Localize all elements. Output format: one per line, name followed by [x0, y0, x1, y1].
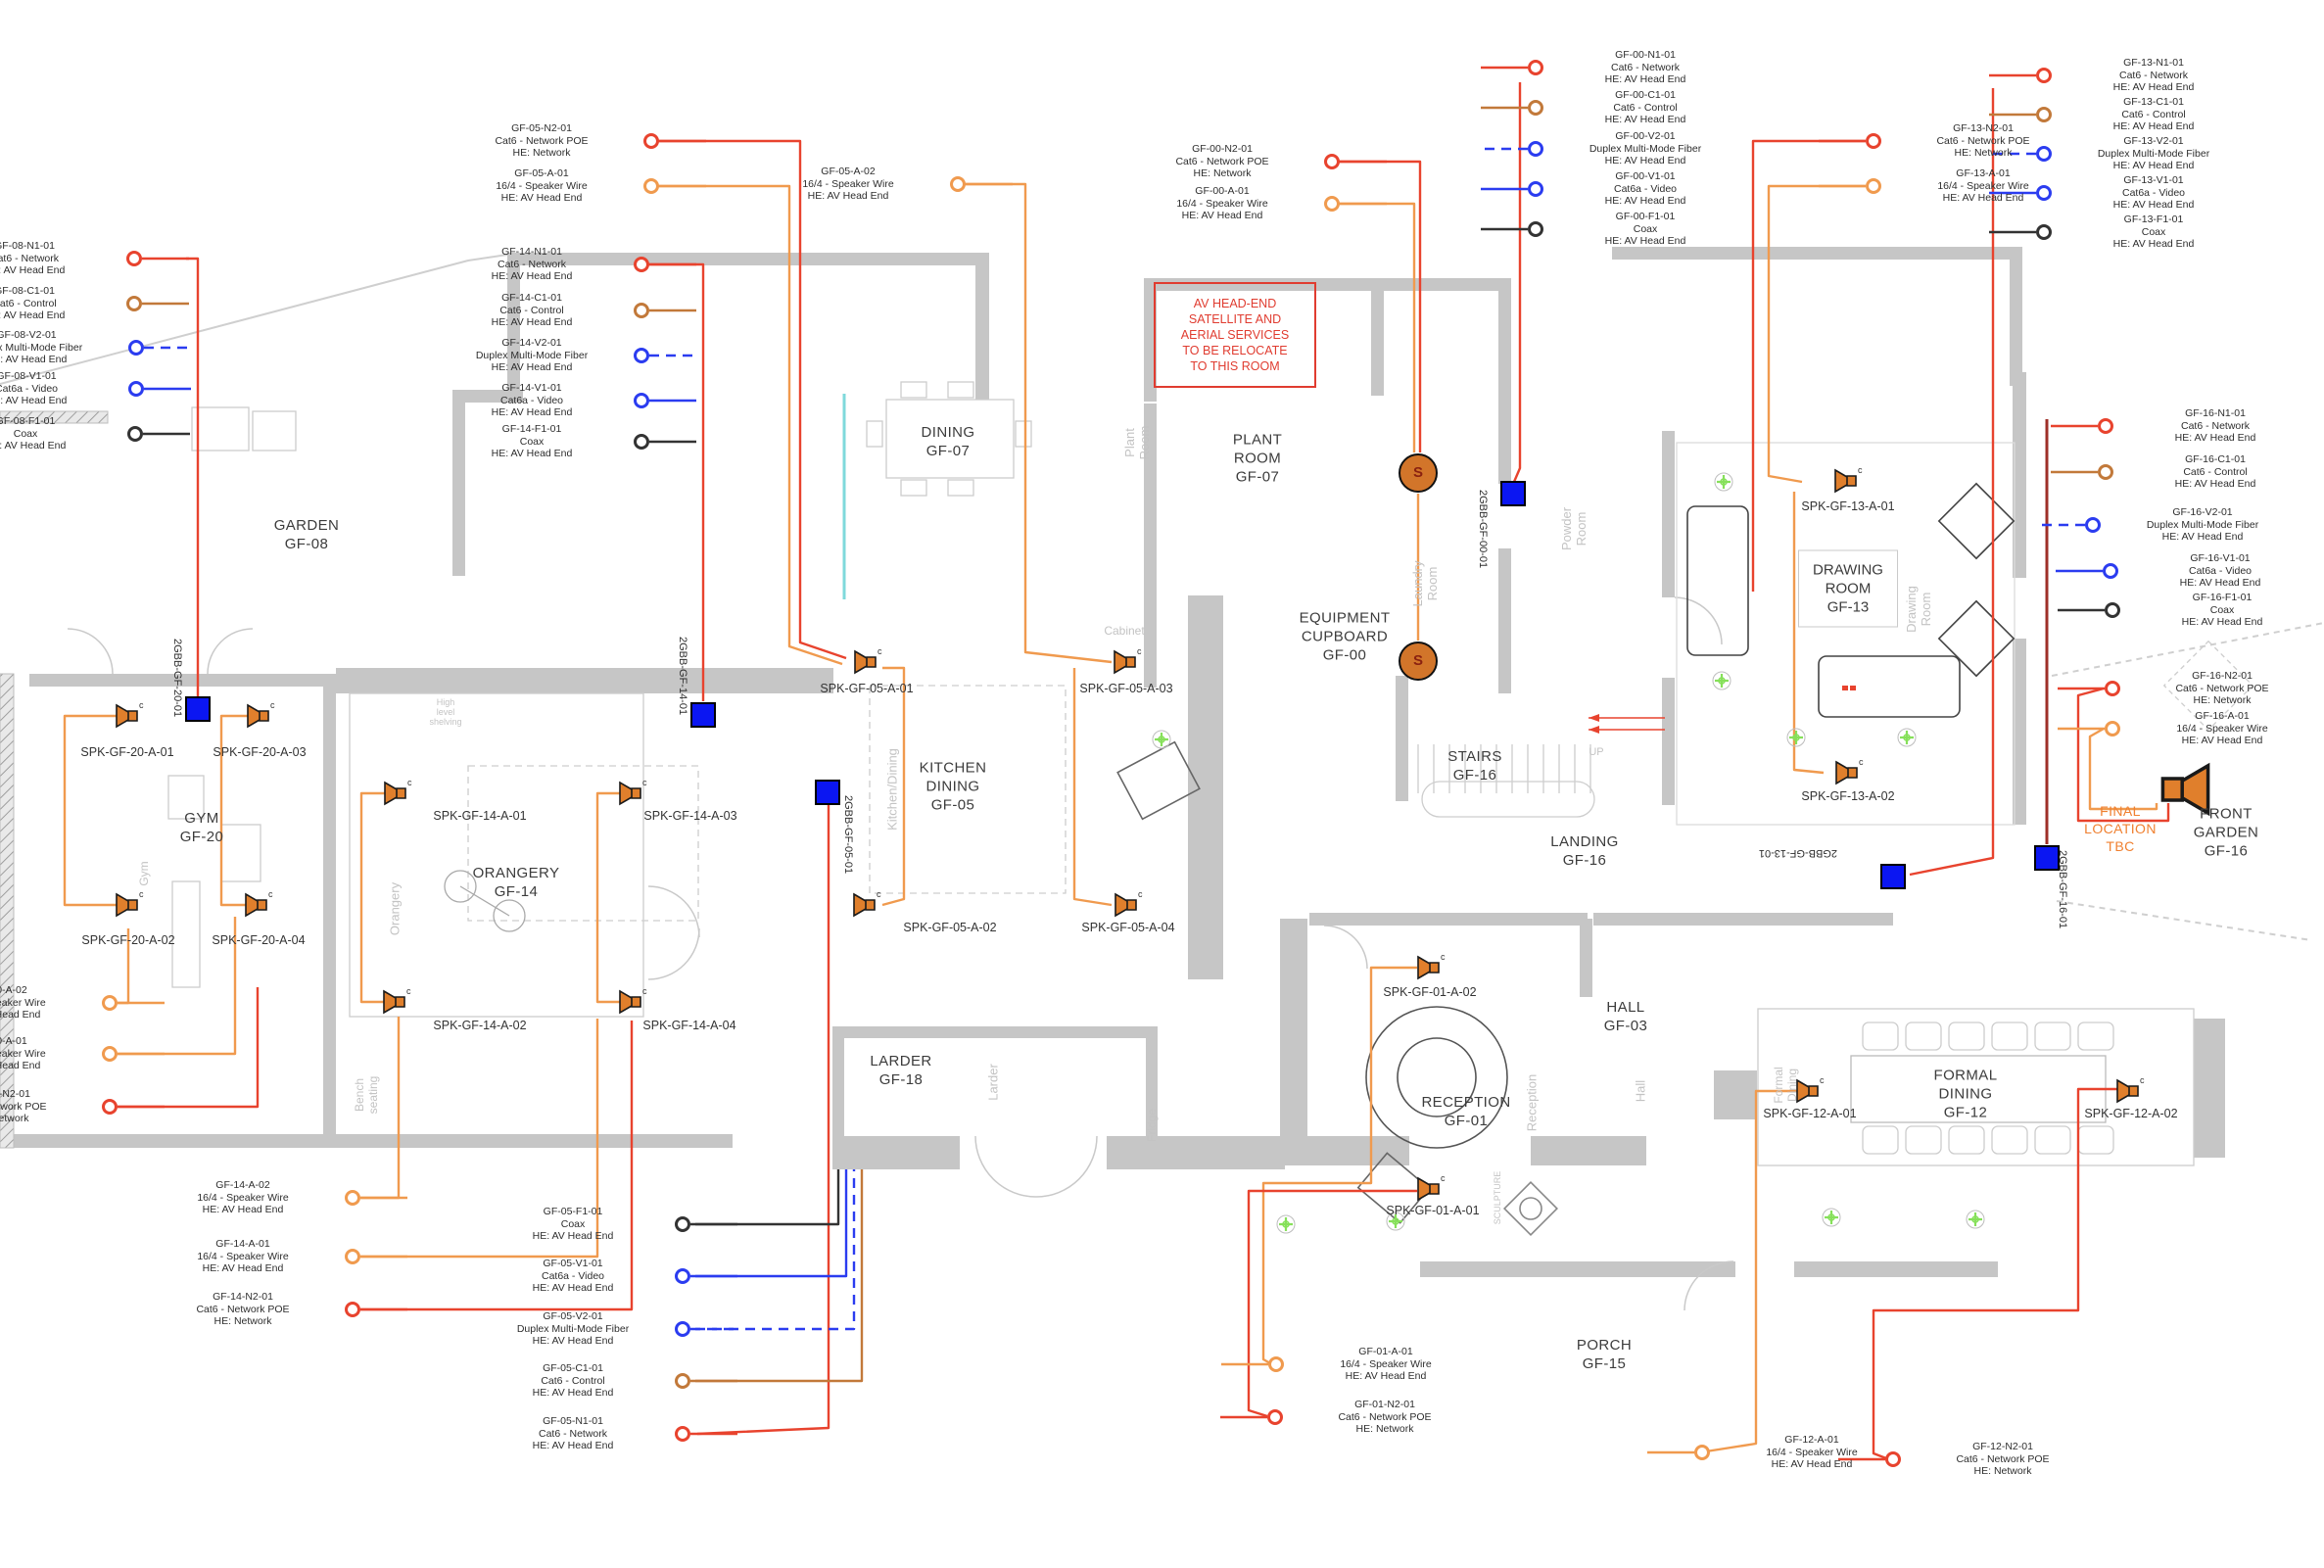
- callout-line: GF-14-C1-01: [434, 292, 630, 305]
- cable-terminal-icon: [643, 178, 659, 194]
- callout-line: Cat6 - Control: [1547, 102, 1743, 115]
- callout-line: Coax: [2124, 604, 2320, 617]
- cable-run: [1910, 88, 1993, 875]
- speaker-label-SPK-GF-12-A-01: SPK-GF-12-A-01: [1763, 1107, 1856, 1120]
- callout-line: HE: AV Head End: [2124, 616, 2320, 629]
- cable-terminal-icon: [675, 1321, 690, 1337]
- callout-line: Cat6 - Network POE: [145, 1304, 341, 1316]
- callout-line: GF-13-A-01: [1885, 167, 2081, 180]
- keypad-label-2GBB-GF-13-01: 2GBB-GF-13-01: [1759, 847, 1837, 859]
- callout-line: Cat6 - Control: [0, 298, 122, 310]
- callout-GF-20-N2-01: GF-20-N2-01Cat6 - Network POEHE: Network: [0, 1088, 98, 1125]
- callout-line: Cat6a - Video: [1547, 183, 1743, 196]
- speaker-label-SPK-GF-13-A-01: SPK-GF-13-A-01: [1801, 499, 1894, 513]
- callout-GF-08-C1-01: GF-08-C1-01Cat6 - ControlHE: AV Head End: [0, 285, 122, 322]
- svg-text:c: c: [406, 986, 411, 996]
- svg-text:c: c: [642, 778, 647, 787]
- callout-line: GF-14-V2-01: [434, 337, 630, 350]
- callout-line: 16/4 - Speaker Wire: [2124, 723, 2320, 736]
- room-label-porch-gf-15: PORCH GF-15: [1577, 1336, 1632, 1373]
- callout-line: Cat6 - Network POE: [1124, 156, 1320, 168]
- callout-line: Duplex Multi-Mode Fiber: [2105, 519, 2300, 532]
- satellite-icon: S: [1399, 641, 1438, 681]
- cable-terminal-icon: [2036, 146, 2052, 162]
- speaker-label-SPK-GF-12-A-02: SPK-GF-12-A-02: [2084, 1107, 2177, 1120]
- cable-run: [697, 805, 829, 1434]
- speaker-label-SPK-GF-01-A-01: SPK-GF-01-A-01: [1386, 1204, 1479, 1217]
- callout-GF-13-F1-01: GF-13-F1-01CoaxHE: AV Head End: [2056, 214, 2252, 251]
- callout-GF-05-V1-01: GF-05-V1-01Cat6a - VideoHE: AV Head End: [475, 1258, 671, 1295]
- callout-line: HE: AV Head End: [475, 1230, 671, 1243]
- callout-line: HE: AV Head End: [434, 448, 630, 460]
- plan-text-laundry-room: Laundry Room: [1410, 561, 1440, 607]
- speaker-label-SPK-GF-20-A-03: SPK-GF-20-A-03: [213, 745, 306, 759]
- note-line: AV HEAD-END: [1156, 296, 1314, 311]
- callout-line: Cat6 - Control: [2117, 466, 2313, 479]
- cable-run: [1753, 141, 1866, 592]
- callout-GF-00-N2-01: GF-00-N2-01Cat6 - Network POEHE: Network: [1124, 143, 1320, 180]
- callout-GF-00-F1-01: GF-00-F1-01CoaxHE: AV Head End: [1547, 211, 1743, 248]
- callout-line: HE: AV Head End: [434, 361, 630, 374]
- callout-line: GF-12-A-01: [1714, 1434, 1910, 1447]
- cable-terminal-icon: [643, 133, 659, 149]
- callout-line: Cat6 - Network: [2056, 70, 2252, 82]
- callout-GF-01-N2-01: GF-01-N2-01Cat6 - Network POEHE: Network: [1287, 1399, 1483, 1436]
- svg-text:c: c: [642, 986, 647, 996]
- cable-terminal-icon: [2105, 602, 2120, 618]
- cable-terminal-icon: [102, 995, 118, 1011]
- callout-line: Cat6a - Video: [0, 383, 124, 396]
- callout-line: GF-05-N2-01: [444, 122, 640, 135]
- room-label-drawing-room-gf-13: DRAWING ROOM GF-13: [1798, 550, 1898, 628]
- plan-text-sculpture: SCULPTURE: [1493, 1171, 1502, 1225]
- relocation-note: AV HEAD-END SATELLITE AND AERIAL SERVICE…: [1154, 282, 1316, 388]
- callout-line: Cat6 - Network POE: [0, 1101, 98, 1114]
- note-line: TO THIS ROOM: [1156, 358, 1314, 374]
- cable-run: [1074, 668, 1112, 905]
- callout-line: GF-14-V1-01: [434, 382, 630, 395]
- callout-GF-14-V2-01: GF-14-V2-01Duplex Multi-Mode FiberHE: AV…: [434, 337, 630, 374]
- callout-line: GF-16-N1-01: [2117, 407, 2313, 420]
- callout-line: HE: AV Head End: [444, 192, 640, 205]
- cable-run: [1873, 1089, 2118, 1458]
- callout-line: GF-00-C1-01: [1547, 89, 1743, 102]
- callout-line: Cat6 - Network: [475, 1428, 671, 1441]
- plan-text-fridge: Fridge: [1145, 1109, 1159, 1142]
- callout-GF-14-C1-01: GF-14-C1-01Cat6 - ControlHE: AV Head End: [434, 292, 630, 329]
- speaker-icon-SPK-GF-14-A-02: c: [384, 986, 411, 1013]
- cable-terminal-icon: [127, 426, 143, 442]
- callout-line: GF-00-N1-01: [1547, 49, 1743, 62]
- callout-line: GF-08-V2-01: [0, 329, 124, 342]
- callout-line: GF-05-C1-01: [475, 1362, 671, 1375]
- svg-text:c: c: [877, 646, 882, 656]
- callout-line: Cat6 - Control: [475, 1375, 671, 1388]
- callout-line: HE: AV Head End: [1885, 192, 2081, 205]
- cable-terminal-icon: [950, 176, 966, 192]
- callout-line: HE: AV Head End: [475, 1335, 671, 1348]
- callout-line: HE: AV Head End: [2056, 81, 2252, 94]
- callout-line: GF-05-A-02: [750, 166, 946, 178]
- callout-line: Duplex Multi-Mode Fiber: [2056, 148, 2252, 161]
- cable-run: [2078, 689, 2168, 821]
- plan-text-cabinet: Cabinet: [1104, 624, 1144, 638]
- keypad-label-2GBB-GF-14-01: 2GBB-GF-14-01: [677, 637, 688, 715]
- keypad-label-2GBB-GF-00-01: 2GBB-GF-00-01: [1477, 490, 1489, 568]
- cable-terminal-icon: [1866, 133, 1881, 149]
- room-label-orangery-gf-14: ORANGERY GF-14: [473, 864, 560, 901]
- callout-line: HE: AV Head End: [2117, 478, 2313, 491]
- callout-GF-16-F1-01: GF-16-F1-01CoaxHE: AV Head End: [2124, 592, 2320, 629]
- callout-line: HE: AV Head End: [2117, 432, 2313, 445]
- callout-GF-05-V2-01: GF-05-V2-01Duplex Multi-Mode FiberHE: AV…: [475, 1310, 671, 1348]
- callout-line: HE: Network: [1124, 167, 1320, 180]
- plan-text-gym: Gym: [137, 861, 151, 885]
- callout-line: HE: AV Head End: [0, 395, 124, 407]
- cable-terminal-icon: [634, 303, 649, 318]
- cable-run: [118, 987, 258, 1107]
- cable-terminal-icon: [634, 393, 649, 408]
- callout-line: GF-05-V1-01: [475, 1258, 671, 1270]
- plan-text-kitchen/dining: Kitchen/Dining: [885, 748, 900, 831]
- callout-line: 16/4 - Speaker Wire: [444, 180, 640, 193]
- callout-GF-20-A-01: GF-20-A-0116/4 - Speaker WireHE: AV Head…: [0, 1035, 98, 1072]
- plan-text-plant-room: Plant Room: [1122, 426, 1152, 460]
- callout-line: HE: AV Head End: [145, 1204, 341, 1216]
- callout-line: HE: AV Head End: [434, 316, 630, 329]
- cable-terminal-icon: [675, 1373, 690, 1389]
- callout-line: HE: AV Head End: [2056, 238, 2252, 251]
- cable-terminal-icon: [2098, 464, 2113, 480]
- callout-line: GF-00-A-01: [1124, 185, 1320, 198]
- speaker-icon-SPK-GF-12-A-01: c: [1797, 1075, 1825, 1102]
- wiring-layer: cccccccccccccccccc: [0, 0, 2324, 1568]
- svg-text:c: c: [139, 700, 144, 710]
- plan-text-drawing-room: Drawing Room: [1904, 586, 1933, 633]
- callout-GF-14-V1-01: GF-14-V1-01Cat6a - VideoHE: AV Head End: [434, 382, 630, 419]
- plan-text-high-level-shelving: High level shelving: [429, 697, 461, 727]
- room-label-equipment-cupboard-gf-00: EQUIPMENT CUPBOARD GF-00: [1300, 609, 1391, 665]
- callout-GF-08-V1-01: GF-08-V1-01Cat6a - VideoHE: AV Head End: [0, 370, 124, 407]
- callout-GF-05-A-01: GF-05-A-0116/4 - Speaker WireHE: AV Head…: [444, 167, 640, 205]
- svg-text:c: c: [1441, 952, 1446, 962]
- note-line: TO BE RELOCATE: [1156, 343, 1314, 358]
- cable-terminal-icon: [634, 434, 649, 450]
- callout-line: HE: AV Head End: [1547, 195, 1743, 208]
- room-label-garden-gf-08: GARDEN GF-08: [274, 516, 340, 553]
- callout-line: Cat6 - Network POE: [1287, 1411, 1483, 1424]
- cable-run: [1263, 968, 1417, 1363]
- room-label-hall-gf-03: HALL GF-03: [1604, 998, 1648, 1035]
- callout-line: HE: AV Head End: [1714, 1458, 1910, 1471]
- callout-line: Cat6 - Network POE: [1885, 135, 2081, 148]
- callout-GF-08-V2-01: GF-08-V2-01Duplex Multi-Mode FiberHE: AV…: [0, 329, 124, 366]
- keypad-2GBB-GF-00-01: [1500, 481, 1526, 506]
- callout-line: HE: AV Head End: [2105, 531, 2300, 544]
- keypad-label-2GBB-GF-05-01: 2GBB-GF-05-01: [842, 795, 854, 874]
- speaker-label-SPK-GF-14-A-04: SPK-GF-14-A-04: [642, 1019, 735, 1032]
- cable-terminal-icon: [1528, 60, 1543, 75]
- keypad-2GBB-GF-13-01: [1880, 864, 1906, 889]
- cable-run: [1332, 162, 1420, 452]
- cable-run: [651, 186, 842, 664]
- svg-text:c: c: [1820, 1075, 1825, 1085]
- callout-line: GF-14-N1-01: [434, 246, 630, 259]
- note-line: SATELLITE AND: [1156, 311, 1314, 327]
- ceiling-point-icon: [1823, 1209, 1840, 1226]
- cable-terminal-icon: [1866, 178, 1881, 194]
- ceiling-point-icon: [1967, 1211, 1984, 1228]
- callout-GF-16-V1-01: GF-16-V1-01Cat6a - VideoHE: AV Head End: [2122, 552, 2318, 590]
- cable-terminal-icon: [345, 1190, 360, 1206]
- plan-text-reception: Reception: [1525, 1074, 1540, 1132]
- speaker-label-SPK-GF-14-A-02: SPK-GF-14-A-02: [433, 1019, 526, 1032]
- callout-line: Cat6 - Control: [2056, 109, 2252, 121]
- callout-line: Cat6 - Network: [0, 253, 122, 265]
- callout-line: Cat6 - Network: [434, 259, 630, 271]
- callout-line: HE: AV Head End: [1547, 73, 1743, 86]
- callout-GF-16-N1-01: GF-16-N1-01Cat6 - NetworkHE: AV Head End: [2117, 407, 2313, 445]
- cable-run: [186, 259, 198, 699]
- callout-line: GF-12-N2-01: [1905, 1441, 2101, 1453]
- callout-line: 16/4 - Speaker Wire: [0, 1048, 98, 1061]
- speaker-label-SPK-GF-05-A-02: SPK-GF-05-A-02: [903, 921, 996, 934]
- callout-line: GF-20-N2-01: [0, 1088, 98, 1101]
- cable-terminal-icon: [2036, 185, 2052, 201]
- callout-GF-00-V1-01: GF-00-V1-01Cat6a - VideoHE: AV Head End: [1547, 170, 1743, 208]
- callout-line: GF-00-N2-01: [1124, 143, 1320, 156]
- cable-terminal-icon: [1324, 154, 1340, 169]
- callout-line: HE: AV Head End: [1547, 155, 1743, 167]
- callout-line: GF-05-F1-01: [475, 1206, 671, 1218]
- callout-line: GF-01-N2-01: [1287, 1399, 1483, 1411]
- callout-line: Cat6a - Video: [434, 395, 630, 407]
- callout-line: HE: Network: [1905, 1465, 2101, 1478]
- callout-GF-13-C1-01: GF-13-C1-01Cat6 - ControlHE: AV Head End: [2056, 96, 2252, 133]
- cable-terminal-icon: [1324, 196, 1340, 212]
- cable-terminal-icon: [2036, 107, 2052, 122]
- callout-line: GF-14-N2-01: [145, 1291, 341, 1304]
- keypad-2GBB-GF-05-01: [815, 780, 840, 805]
- svg-text:c: c: [139, 889, 144, 899]
- callout-line: HE: Network: [1885, 147, 2081, 160]
- svg-text:c: c: [877, 889, 881, 899]
- cable-terminal-icon: [1885, 1451, 1901, 1467]
- callout-line: HE: Network: [145, 1315, 341, 1328]
- callout-line: GF-16-C1-01: [2117, 453, 2313, 466]
- callout-line: GF-00-V2-01: [1547, 130, 1743, 143]
- callout-line: GF-13-C1-01: [2056, 96, 2252, 109]
- callout-line: GF-00-V1-01: [1547, 170, 1743, 183]
- room-label-stairs-gf-16: STAIRS GF-16: [1447, 747, 1501, 784]
- callout-GF-14-A-02: GF-14-A-0216/4 - Speaker WireHE: AV Head…: [145, 1179, 341, 1216]
- cable-terminal-icon: [102, 1099, 118, 1115]
- cable-run: [695, 1169, 838, 1224]
- note-line: AERIAL SERVICES: [1156, 327, 1314, 343]
- speaker-icon-SPK-GF-05-A-04: c: [1115, 889, 1143, 916]
- cable-run: [597, 793, 621, 1002]
- cable-terminal-icon: [1268, 1356, 1284, 1372]
- callout-line: GF-05-V2-01: [475, 1310, 671, 1323]
- plan-text-powder-room: Powder Room: [1559, 507, 1589, 550]
- callout-line: HE: AV Head End: [475, 1440, 671, 1452]
- speaker-icon-SPK-GF-14-A-04: c: [620, 986, 647, 1013]
- cable-terminal-icon: [126, 296, 142, 311]
- speaker-label-SPK-GF-05-A-04: SPK-GF-05-A-04: [1081, 921, 1174, 934]
- cable-run: [1706, 1091, 1798, 1451]
- cable-run: [221, 716, 249, 905]
- svg-text:c: c: [268, 889, 273, 899]
- speaker-label-SPK-GF-14-A-01: SPK-GF-14-A-01: [433, 809, 526, 823]
- room-label-dining-gf-07: DINING GF-07: [922, 423, 975, 460]
- callout-line: HE: Network: [0, 1113, 98, 1125]
- callout-line: 16/4 - Speaker Wire: [145, 1192, 341, 1205]
- svg-text:c: c: [1137, 646, 1142, 656]
- callout-line: Cat6 - Network POE: [2124, 683, 2320, 695]
- callout-line: HE: AV Head End: [0, 354, 124, 366]
- cable-terminal-icon: [2105, 681, 2120, 696]
- plan-text-formal-dining: Formal Dining: [1772, 1067, 1799, 1103]
- callout-line: Coax: [2056, 226, 2252, 239]
- cable-run: [695, 1169, 846, 1276]
- room-label-gym-gf-20: GYM GF-20: [180, 809, 224, 846]
- callout-line: 16/4 - Speaker Wire: [0, 997, 98, 1010]
- speaker-label-SPK-GF-14-A-03: SPK-GF-14-A-03: [643, 809, 736, 823]
- callout-line: HE: AV Head End: [0, 440, 123, 452]
- cable-terminal-icon: [128, 381, 144, 397]
- callout-line: 16/4 - Speaker Wire: [1288, 1358, 1484, 1371]
- callout-line: GF-13-F1-01: [2056, 214, 2252, 226]
- callout-line: HE: AV Head End: [2056, 120, 2252, 133]
- ceiling-point-icon: [1277, 1215, 1295, 1233]
- cable-terminal-icon: [2036, 68, 2052, 83]
- callout-line: GF-20-A-02: [0, 984, 98, 997]
- speaker-icon-SPK-GF-13-A-02: c: [1836, 757, 1864, 784]
- callout-line: HE: AV Head End: [434, 406, 630, 419]
- room-label-front-garden-gf-16: FRONT GARDEN GF-16: [2194, 805, 2259, 861]
- callout-GF-01-A-01: GF-01-A-0116/4 - Speaker WireHE: AV Head…: [1288, 1346, 1484, 1383]
- cable-terminal-icon: [2105, 721, 2120, 736]
- room-label-formal-dining-gf-12: FORMAL DINING GF-12: [1934, 1067, 1998, 1122]
- callout-line: GF-08-F1-01: [0, 415, 123, 428]
- callout-line: HE: AV Head End: [1288, 1370, 1484, 1383]
- room-label-kitchen-dining-gf-05: KITCHEN DINING GF-05: [920, 759, 987, 815]
- callout-line: HE: AV Head End: [0, 1009, 98, 1022]
- cable-terminal-icon: [675, 1216, 690, 1232]
- callout-line: Duplex Multi-Mode Fiber: [475, 1323, 671, 1336]
- plan-text-orangery: Orangery: [388, 882, 403, 935]
- callout-line: Coax: [475, 1218, 671, 1231]
- cable-terminal-icon: [2098, 418, 2113, 434]
- callout-GF-05-C1-01: GF-05-C1-01Cat6 - ControlHE: AV Head End: [475, 1362, 671, 1400]
- room-label-final-location-tbc: FINAL LOCATION TBC: [2084, 802, 2157, 855]
- callout-line: 16/4 - Speaker Wire: [1885, 180, 2081, 193]
- callout-line: Cat6 - Network POE: [1905, 1453, 2101, 1466]
- ceiling-point-icon: [1153, 731, 1170, 748]
- svg-text:c: c: [1859, 757, 1864, 767]
- callout-GF-13-N1-01: GF-13-N1-01Cat6 - NetworkHE: AV Head End: [2056, 57, 2252, 94]
- callout-line: GF-14-A-02: [145, 1179, 341, 1192]
- callout-line: Cat6 - Network: [2117, 420, 2313, 433]
- callout-line: HE: AV Head End: [750, 190, 946, 203]
- cable-run: [65, 716, 118, 905]
- callout-GF-00-V2-01: GF-00-V2-01Duplex Multi-Mode FiberHE: AV…: [1547, 130, 1743, 167]
- svg-text:c: c: [1138, 889, 1143, 899]
- speaker-label-SPK-GF-20-A-02: SPK-GF-20-A-02: [81, 933, 174, 947]
- speaker-label-SPK-GF-20-A-04: SPK-GF-20-A-04: [212, 933, 305, 947]
- callout-line: HE: Network: [1287, 1423, 1483, 1436]
- cable-run: [1332, 204, 1414, 452]
- cable-terminal-icon: [102, 1046, 118, 1062]
- svg-text:c: c: [1441, 1173, 1446, 1183]
- callout-GF-16-C1-01: GF-16-C1-01Cat6 - ControlHE: AV Head End: [2117, 453, 2313, 491]
- callout-GF-05-N1-01: GF-05-N1-01Cat6 - NetworkHE: AV Head End: [475, 1415, 671, 1452]
- callout-line: GF-00-F1-01: [1547, 211, 1743, 223]
- callout-GF-12-N2-01: GF-12-N2-01Cat6 - Network POEHE: Network: [1905, 1441, 2101, 1478]
- callout-GF-13-A-01: GF-13-A-0116/4 - Speaker WireHE: AV Head…: [1885, 167, 2081, 205]
- callout-GF-08-F1-01: GF-08-F1-01CoaxHE: AV Head End: [0, 415, 123, 452]
- callout-GF-14-N2-01: GF-14-N2-01Cat6 - Network POEHE: Network: [145, 1291, 341, 1328]
- callout-line: Cat6 - Control: [434, 305, 630, 317]
- svg-text:c: c: [270, 700, 275, 710]
- speaker-icon-SPK-GF-14-A-01: c: [385, 778, 412, 804]
- callout-line: GF-05-N1-01: [475, 1415, 671, 1428]
- speaker-label-SPK-GF-13-A-02: SPK-GF-13-A-02: [1801, 789, 1894, 803]
- callout-GF-05-N2-01: GF-05-N2-01Cat6 - Network POEHE: Network: [444, 122, 640, 160]
- speaker-icon-SPK-GF-20-A-03: c: [248, 700, 275, 727]
- callout-line: HE: AV Head End: [2124, 735, 2320, 747]
- cable-run: [958, 184, 1112, 662]
- speaker-icon-SPK-GF-12-A-02: c: [2117, 1075, 2145, 1102]
- plan-text-hall: Hall: [1634, 1080, 1648, 1102]
- cable-run: [641, 264, 703, 701]
- keypad-label-2GBB-GF-20-01: 2GBB-GF-20-01: [171, 639, 183, 717]
- cable-run: [1794, 492, 1824, 773]
- callout-line: HE: AV Head End: [0, 1060, 98, 1072]
- speaker-icon-SPK-GF-20-A-04: c: [246, 889, 273, 916]
- cable-run: [1769, 186, 1866, 482]
- cable-terminal-icon: [2085, 517, 2101, 533]
- speaker-icon-SPK-GF-13-A-01: c: [1835, 465, 1863, 492]
- cable-terminal-icon: [1528, 141, 1543, 157]
- callout-line: HE: AV Head End: [1124, 210, 1320, 222]
- callout-GF-14-A-01: GF-14-A-0116/4 - Speaker WireHE: AV Head…: [145, 1238, 341, 1275]
- room-label-landing-gf-16: LANDING GF-16: [1550, 832, 1618, 870]
- speaker-icon-SPK-GF-05-A-03: c: [1115, 646, 1142, 673]
- cable-terminal-icon: [345, 1302, 360, 1317]
- callout-GF-05-F1-01: GF-05-F1-01CoaxHE: AV Head End: [475, 1206, 671, 1243]
- callout-line: Duplex Multi-Mode Fiber: [0, 342, 124, 355]
- callout-line: GF-16-V2-01: [2105, 506, 2300, 519]
- callout-line: HE: AV Head End: [2056, 199, 2252, 212]
- cable-terminal-icon: [2103, 563, 2118, 579]
- callout-line: 16/4 - Speaker Wire: [145, 1251, 341, 1263]
- callout-line: 16/4 - Speaker Wire: [750, 178, 946, 191]
- callout-line: GF-13-N1-01: [2056, 57, 2252, 70]
- cable-terminal-icon: [1528, 221, 1543, 237]
- callout-GF-14-F1-01: GF-14-F1-01CoaxHE: AV Head End: [434, 423, 630, 460]
- cable-run: [1249, 1191, 1417, 1416]
- cable-terminal-icon: [345, 1249, 360, 1264]
- callout-GF-13-V1-01: GF-13-V1-01Cat6a - VideoHE: AV Head End: [2056, 174, 2252, 212]
- callout-line: GF-05-A-01: [444, 167, 640, 180]
- cable-terminal-icon: [1694, 1445, 1710, 1460]
- speaker-icon-SPK-GF-01-A-02: c: [1418, 952, 1446, 978]
- callout-line: HE: AV Head End: [434, 270, 630, 283]
- callout-line: GF-08-V1-01: [0, 370, 124, 383]
- callout-line: GF-16-N2-01: [2124, 670, 2320, 683]
- callout-line: Cat6 - Network POE: [444, 135, 640, 148]
